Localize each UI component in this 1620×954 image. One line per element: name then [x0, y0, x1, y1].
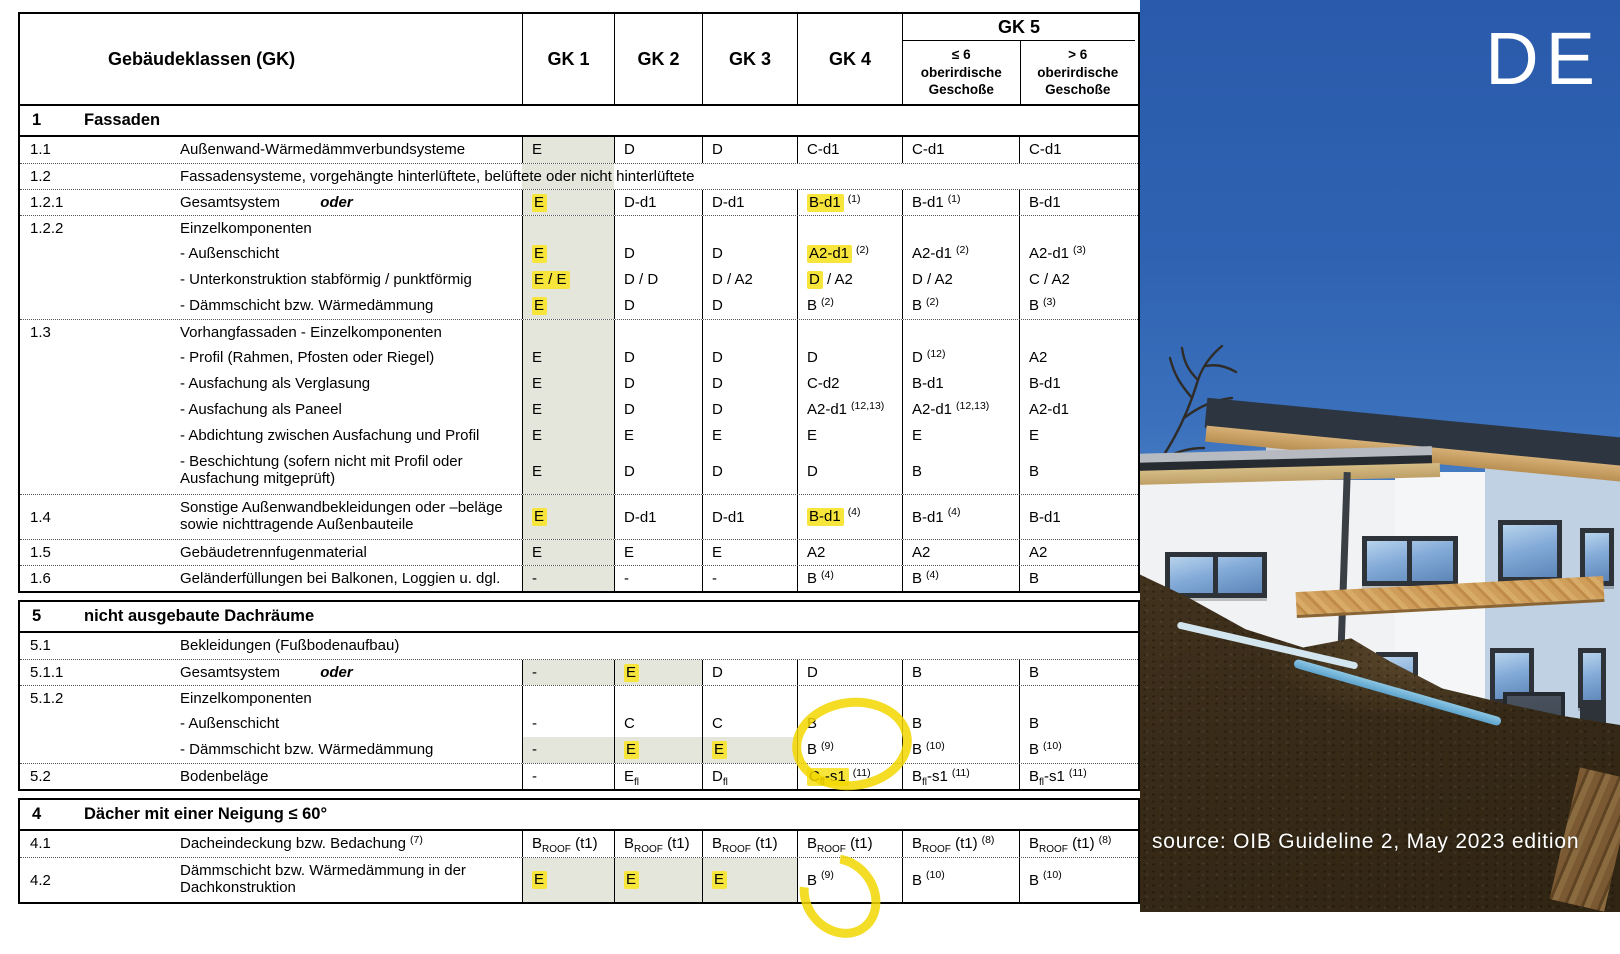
cell-gk3: [702, 320, 797, 345]
row-label: Vorhangfassaden - Einzelkomponenten: [82, 320, 522, 345]
cell-gk3: D: [702, 137, 797, 163]
table-row-1.6: 1.6Geländerfüllungen bei Balkonen, Loggi…: [20, 565, 1138, 591]
cell-gk3: Dfl: [702, 764, 797, 789]
cell-gk2: D: [614, 449, 702, 494]
header-gk4: GK 4: [797, 14, 902, 104]
cell-gk1: -: [522, 711, 614, 737]
cell-gk3: E: [702, 858, 797, 902]
cell-gk5-le6: B(2): [902, 293, 1019, 319]
row-number: [20, 449, 82, 494]
row-number: 5.1.2: [20, 686, 82, 711]
cell-gk5-gt6: A2-d1: [1019, 397, 1135, 423]
row-label: Geländerfüllungen bei Balkonen, Loggien …: [82, 566, 522, 591]
row-label: Bodenbeläge: [82, 764, 522, 789]
header-gebaeudeklassen: Gebäudeklassen (GK): [20, 14, 522, 104]
cell-gk1: BROOF (t1): [522, 831, 614, 857]
row-number: [20, 397, 82, 423]
row-label: Außenwand-Wärmedämmverbundsysteme: [82, 137, 522, 163]
cell-gk3: E: [702, 737, 797, 763]
cell-gk5-le6: B: [902, 449, 1019, 494]
row-label: Gesamtsystem oder: [82, 190, 522, 215]
section-title-5: 5nicht ausgebaute Dachräume: [20, 602, 1138, 633]
cell-gk2: Efl: [614, 764, 702, 789]
row-number: [20, 267, 82, 293]
cell-gk5-le6: [902, 686, 1019, 711]
row-label: Gebäudetrennfugenmaterial: [82, 540, 522, 565]
row-number: 4.1: [20, 831, 82, 857]
cell-gk3: E: [702, 423, 797, 449]
row-label: Dämmschicht bzw. Wärmedämmung in derDach…: [82, 858, 522, 902]
row-label: Gesamtsystem oder: [82, 660, 522, 685]
cell-gk4: Cfl-s1(11): [797, 764, 902, 789]
table-row: - Ausfachung als VerglasungEDDC-d2B-d1B-…: [20, 371, 1138, 397]
row-label: Fassadensysteme, vorgehängte hinterlüfte…: [82, 164, 1138, 189]
row-number: 1.6: [20, 566, 82, 591]
row-number: [20, 711, 82, 737]
cell-gk2: E: [614, 540, 702, 565]
cell-gk5-gt6: [1019, 320, 1135, 345]
cell-gk5-le6: D(12): [902, 345, 1019, 371]
table-row-4.1: 4.1Dacheindeckung bzw. Bedachung(7)BROOF…: [20, 831, 1138, 857]
row-label: - Abdichtung zwischen Ausfachung und Pro…: [82, 423, 522, 449]
cell-gk5-gt6: B-d1: [1019, 495, 1135, 539]
cell-gk5-gt6: C-d1: [1019, 137, 1135, 163]
table-row-5.2: 5.2Bodenbeläge-EflDflCfl-s1(11)Bfl-s1(11…: [20, 763, 1138, 789]
cell-gk5-le6: B(4): [902, 566, 1019, 591]
table-row: - AußenschichtEDDA2-d1(2)A2-d1(2)A2-d1(3…: [20, 241, 1138, 267]
cell-gk5-le6: B: [902, 660, 1019, 685]
row-number: [20, 241, 82, 267]
table-row: - Dämmschicht bzw. WärmedämmungEDDB(2)B(…: [20, 293, 1138, 319]
cell-gk4: BROOF (t1): [797, 831, 902, 857]
cell-gk5-le6: [902, 320, 1019, 345]
row-number: 5.1.1: [20, 660, 82, 685]
table-row: - Beschichtung (sofern nicht mit Profil …: [20, 449, 1138, 494]
table-header: Gebäudeklassen (GK) GK 1 GK 2 GK 3 GK 4 …: [20, 14, 1138, 106]
cell-gk5-gt6: C / A2: [1019, 267, 1135, 293]
cell-gk4: B-d1(4): [797, 495, 902, 539]
table-row-5.1.2: 5.1.2Einzelkomponenten: [20, 685, 1138, 711]
cell-gk3: -: [702, 566, 797, 591]
cell-gk4: B-d1(1): [797, 190, 902, 215]
table-row-5.1: 5.1Bekleidungen (Fußbodenaufbau): [20, 633, 1138, 659]
cell-gk5-le6: B-d1(4): [902, 495, 1019, 539]
window-upper-2: [1362, 536, 1458, 586]
cell-gk4: E: [797, 423, 902, 449]
cell-gk1: E: [522, 345, 614, 371]
cell-gk5-gt6: B-d1: [1019, 190, 1135, 215]
row-label: - Außenschicht: [82, 711, 522, 737]
cell-gk3: D: [702, 660, 797, 685]
table-row-1.2.1: 1.2.1Gesamtsystem oderED-d1D-d1B-d1(1)B-…: [20, 189, 1138, 215]
cell-gk3: D: [702, 371, 797, 397]
header-gk3: GK 3: [702, 14, 797, 104]
cell-gk2: BROOF (t1): [614, 831, 702, 857]
cell-gk5-gt6: A2: [1019, 540, 1135, 565]
table-row-1.2: 1.2Fassadensysteme, vorgehängte hinterlü…: [20, 163, 1138, 189]
cell-gk4: [797, 686, 902, 711]
row-number: 1.4: [20, 495, 82, 539]
cell-gk4: B(4): [797, 566, 902, 591]
row-label: - Unterkonstruktion stabförmig / punktfö…: [82, 267, 522, 293]
row-number: [20, 293, 82, 319]
cell-gk3: [702, 686, 797, 711]
cell-gk3: [702, 216, 797, 241]
cell-gk5-le6: D / A2: [902, 267, 1019, 293]
cell-gk5-le6: BROOF (t1)(8): [902, 831, 1019, 857]
cell-gk5-gt6: B: [1019, 449, 1135, 494]
row-label: - Profil (Rahmen, Pfosten oder Riegel): [82, 345, 522, 371]
cell-gk1: E: [522, 190, 614, 215]
row-number: [20, 423, 82, 449]
cell-gk5-gt6: E: [1019, 423, 1135, 449]
cell-gk4: D: [797, 660, 902, 685]
row-number: 5.2: [20, 764, 82, 789]
cell-gk2: C: [614, 711, 702, 737]
row-number: 4.2: [20, 858, 82, 902]
row-number: 1.2.1: [20, 190, 82, 215]
cell-gk5-gt6: B: [1019, 566, 1135, 591]
cell-gk2: E: [614, 423, 702, 449]
cell-gk4: [797, 320, 902, 345]
cell-gk5-gt6: B: [1019, 660, 1135, 685]
cell-gk3: D: [702, 241, 797, 267]
cell-gk4: B(9): [797, 737, 902, 763]
row-number: [20, 737, 82, 763]
cell-gk1: [522, 216, 614, 241]
cell-gk1: E: [522, 495, 614, 539]
table-row-1.1: 1.1Außenwand-WärmedämmverbundsystemeEDDC…: [20, 137, 1138, 163]
cell-gk1: E: [522, 540, 614, 565]
row-label: - Dämmschicht bzw. Wärmedämmung: [82, 737, 522, 763]
row-number: 5.1: [20, 633, 82, 659]
cell-gk2: D: [614, 293, 702, 319]
country-tag: DE: [1485, 16, 1602, 101]
cell-gk2: E: [614, 737, 702, 763]
cell-gk5-le6: C-d1: [902, 137, 1019, 163]
row-label: - Ausfachung als Paneel: [82, 397, 522, 423]
table-row: - Ausfachung als PaneelEDDA2-d1(12,13)A2…: [20, 397, 1138, 423]
cell-gk5-gt6: B: [1019, 711, 1135, 737]
row-label: Dacheindeckung bzw. Bedachung(7): [82, 831, 522, 857]
window-upper-1: [1165, 552, 1267, 598]
row-number: 1.5: [20, 540, 82, 565]
building-class-table: Gebäudeklassen (GK) GK 1 GK 2 GK 3 GK 4 …: [18, 12, 1140, 911]
cell-gk2: D-d1: [614, 495, 702, 539]
cell-gk4: C-d1: [797, 137, 902, 163]
table-row-1.5: 1.5GebäudetrennfugenmaterialEEEA2A2A2: [20, 539, 1138, 565]
cell-gk4: D: [797, 449, 902, 494]
cell-gk2: [614, 686, 702, 711]
cell-gk1: E: [522, 423, 614, 449]
header-gk2: GK 2: [614, 14, 702, 104]
cell-gk1: E: [522, 241, 614, 267]
cell-gk2: [614, 216, 702, 241]
table-row-1.3: 1.3Vorhangfassaden - Einzelkomponenten: [20, 319, 1138, 345]
cell-gk5-le6: A2: [902, 540, 1019, 565]
cell-gk5-le6: B-d1: [902, 371, 1019, 397]
table-row-1.2.2: 1.2.2Einzelkomponenten: [20, 215, 1138, 241]
row-number: 1.2.2: [20, 216, 82, 241]
cell-gk3: D-d1: [702, 190, 797, 215]
construction-photo: DE source: OIB Guideline 2, May 2023 edi…: [1140, 0, 1620, 912]
cell-gk1: E: [522, 449, 614, 494]
cell-gk3: D / A2: [702, 267, 797, 293]
row-label: Bekleidungen (Fußbodenaufbau): [82, 633, 1138, 659]
header-gk1: GK 1: [522, 14, 614, 104]
row-label: - Ausfachung als Verglasung: [82, 371, 522, 397]
cell-gk4: A2: [797, 540, 902, 565]
row-label: - Außenschicht: [82, 241, 522, 267]
cell-gk4: A2-d1(12,13): [797, 397, 902, 423]
cell-gk5-gt6: [1019, 216, 1135, 241]
cell-gk1: -: [522, 764, 614, 789]
cell-gk3: BROOF (t1): [702, 831, 797, 857]
cell-gk1: -: [522, 737, 614, 763]
cell-gk3: D-d1: [702, 495, 797, 539]
cell-gk5-le6: [902, 216, 1019, 241]
cell-gk1: E: [522, 397, 614, 423]
cell-gk4: [797, 216, 902, 241]
cell-gk4: B(2): [797, 293, 902, 319]
cell-gk1: -: [522, 660, 614, 685]
cell-gk1: -: [522, 566, 614, 591]
cell-gk2: -: [614, 566, 702, 591]
window-upper-3: [1498, 520, 1562, 582]
cell-gk5-le6: A2-d1(2): [902, 241, 1019, 267]
cell-gk1: E / E: [522, 267, 614, 293]
cell-gk3: D: [702, 293, 797, 319]
table-block-dachraeume: 5nicht ausgebaute Dachräume5.1Bekleidung…: [18, 600, 1140, 791]
table-row-4.2: 4.2Dämmschicht bzw. Wärmedämmung in derD…: [20, 857, 1138, 902]
cell-gk5-gt6: A2-d1(3): [1019, 241, 1135, 267]
cell-gk3: D: [702, 345, 797, 371]
cell-gk1: E: [522, 371, 614, 397]
row-label: Einzelkomponenten: [82, 216, 522, 241]
table-row-1.4: 1.4Sonstige Außenwandbekleidungen oder –…: [20, 494, 1138, 539]
cell-gk3: D: [702, 397, 797, 423]
cell-gk5-le6: E: [902, 423, 1019, 449]
cell-gk5-le6: B: [902, 711, 1019, 737]
cell-gk5-gt6: B-d1: [1019, 371, 1135, 397]
cell-gk5-gt6: B(3): [1019, 293, 1135, 319]
table-row: - Dämmschicht bzw. Wärmedämmung-EEB(9)B(…: [20, 737, 1138, 763]
header-gk5-group: GK 5 ≤ 6 oberirdische Geschoße > 6 oberi…: [902, 14, 1135, 104]
cell-gk2: D: [614, 241, 702, 267]
row-number: [20, 345, 82, 371]
cell-gk2: D: [614, 137, 702, 163]
photo-caption: source: OIB Guideline 2, May 2023 editio…: [1152, 830, 1579, 854]
cell-gk2: E: [614, 660, 702, 685]
header-gk5-le6: ≤ 6 oberirdische Geschoße: [903, 41, 1020, 104]
row-number: [20, 371, 82, 397]
cell-gk2: D: [614, 345, 702, 371]
cell-gk5-gt6: A2: [1019, 345, 1135, 371]
cell-gk2: E: [614, 858, 702, 902]
cell-gk1: E: [522, 858, 614, 902]
section-title-1: 1Fassaden: [20, 106, 1138, 137]
cell-gk3: E: [702, 540, 797, 565]
cell-gk5-gt6: B(10): [1019, 858, 1135, 902]
cell-gk5-gt6: Bfl-s1(11): [1019, 764, 1135, 789]
cell-gk2: [614, 320, 702, 345]
cell-gk5-gt6: B(10): [1019, 737, 1135, 763]
row-label: Einzelkomponenten: [82, 686, 522, 711]
row-label: - Beschichtung (sofern nicht mit Profil …: [82, 449, 522, 494]
cell-gk2: D-d1: [614, 190, 702, 215]
row-label: Sonstige Außenwandbekleidungen oder –bel…: [82, 495, 522, 539]
cell-gk5-le6: Bfl-s1(11): [902, 764, 1019, 789]
cell-gk4: D / A2: [797, 267, 902, 293]
cell-gk4: B(9): [797, 858, 902, 902]
cell-gk5-le6: B-d1(1): [902, 190, 1019, 215]
cell-gk5-le6: B(10): [902, 858, 1019, 902]
cell-gk5-gt6: [1019, 686, 1135, 711]
cell-gk1: E: [522, 293, 614, 319]
table-row: - Profil (Rahmen, Pfosten oder Riegel)ED…: [20, 345, 1138, 371]
table-block-fassaden: Gebäudeklassen (GK) GK 1 GK 2 GK 3 GK 4 …: [18, 12, 1140, 593]
header-gk5: GK 5: [903, 14, 1135, 41]
section-title-4: 4Dächer mit einer Neigung ≤ 60°: [20, 800, 1138, 831]
row-number: 1.2: [20, 164, 82, 189]
cell-gk2: D: [614, 371, 702, 397]
table-row: - Unterkonstruktion stabförmig / punktfö…: [20, 267, 1138, 293]
cell-gk3: D: [702, 449, 797, 494]
cell-gk5-le6: B(10): [902, 737, 1019, 763]
row-number: 1.3: [20, 320, 82, 345]
header-gk5-gt6: > 6 oberirdische Geschoße: [1020, 41, 1136, 104]
table-block-daecher: 4Dächer mit einer Neigung ≤ 60°4.1Dachei…: [18, 798, 1140, 904]
cell-gk5-gt6: BROOF (t1)(8): [1019, 831, 1135, 857]
table-row: - Abdichtung zwischen Ausfachung und Pro…: [20, 423, 1138, 449]
cell-gk1: E: [522, 137, 614, 163]
window-lower-5: [1578, 648, 1606, 708]
row-label: - Dämmschicht bzw. Wärmedämmung: [82, 293, 522, 319]
cell-gk4: B: [797, 711, 902, 737]
cell-gk1: [522, 686, 614, 711]
cell-gk1: [522, 320, 614, 345]
cell-gk2: D: [614, 397, 702, 423]
row-number: 1.1: [20, 137, 82, 163]
cell-gk3: C: [702, 711, 797, 737]
table-row-5.1.1: 5.1.1Gesamtsystem oder-EDDBB: [20, 659, 1138, 685]
cell-gk4: A2-d1(2): [797, 241, 902, 267]
cell-gk4: C-d2: [797, 371, 902, 397]
table-row: - Außenschicht-CCBBB: [20, 711, 1138, 737]
cell-gk5-le6: A2-d1(12,13): [902, 397, 1019, 423]
cell-gk4: D: [797, 345, 902, 371]
cell-gk2: D / D: [614, 267, 702, 293]
